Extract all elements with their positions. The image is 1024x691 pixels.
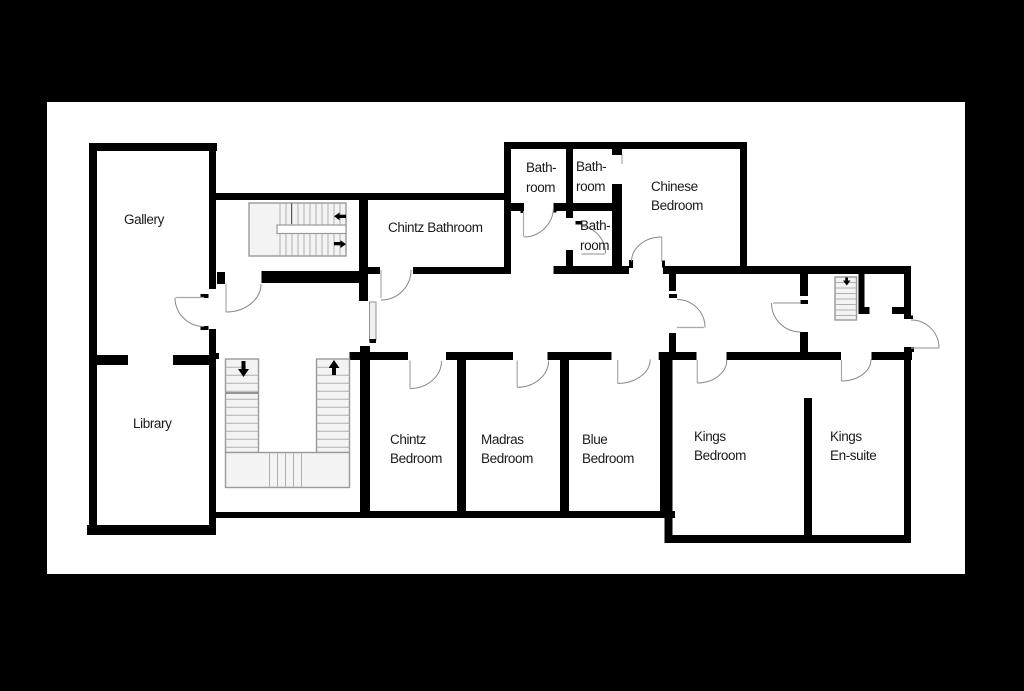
svg-text:Chintz Bathroom: Chintz Bathroom [388, 220, 483, 235]
svg-text:Library: Library [133, 416, 172, 431]
svg-text:Bedroom: Bedroom [694, 448, 746, 463]
svg-text:Bedroom: Bedroom [481, 451, 533, 466]
svg-text:room: room [576, 179, 605, 194]
svg-text:Madras: Madras [481, 432, 524, 447]
svg-text:room: room [580, 238, 609, 253]
svg-text:Bedroom: Bedroom [390, 451, 442, 466]
svg-text:Bedroom: Bedroom [651, 198, 703, 213]
svg-text:Bath-: Bath- [526, 160, 556, 175]
svg-text:Bedroom: Bedroom [582, 451, 634, 466]
svg-text:Bath-: Bath- [580, 218, 610, 233]
svg-text:room: room [526, 180, 555, 195]
svg-text:Blue: Blue [582, 432, 607, 447]
svg-text:Chintz: Chintz [390, 432, 427, 447]
svg-text:Bath-: Bath- [576, 159, 606, 174]
svg-text:Kings: Kings [694, 429, 726, 444]
svg-text:Gallery: Gallery [124, 212, 165, 227]
svg-text:Kings: Kings [830, 429, 862, 444]
svg-text:En-suite: En-suite [830, 448, 876, 463]
svg-text:Chinese: Chinese [651, 179, 698, 194]
